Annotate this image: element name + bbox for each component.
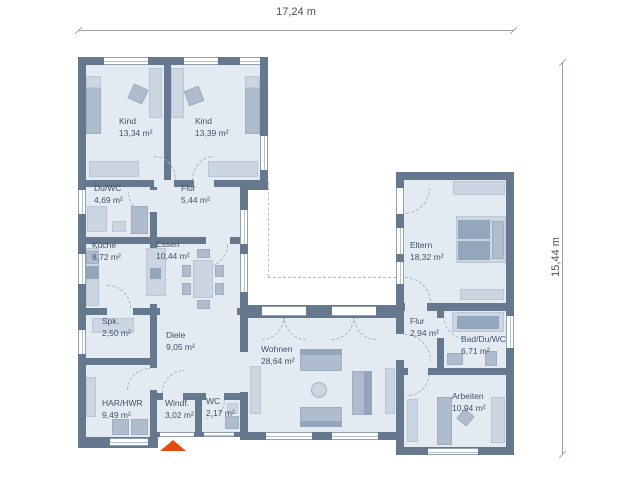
chair-icon [182, 265, 191, 277]
window [332, 432, 378, 440]
window [396, 228, 404, 254]
door-opening [396, 334, 404, 360]
room-label-windf: Windf.3,02 m² [165, 398, 194, 422]
mattress-icon [458, 220, 490, 239]
passage-essen-diele [160, 308, 237, 315]
window [428, 448, 478, 455]
terrace-door-threshold [396, 188, 404, 214]
chair-icon [215, 283, 224, 295]
window [110, 438, 148, 446]
window [240, 57, 260, 65]
pillow-icon [86, 76, 101, 88]
wardrobe-icon [453, 181, 505, 195]
sofa-back-icon [300, 349, 342, 355]
bathtub-inner-icon [457, 316, 499, 329]
room-label-essen: Essen10,44 m² [156, 239, 190, 263]
room-label-wc: WC2,17 m² [206, 396, 235, 420]
chair-icon [197, 249, 210, 258]
window [78, 254, 86, 284]
room-label-harhwr: HAR/HWR9,49 m² [102, 398, 143, 422]
pillow-icon [492, 221, 504, 259]
room-label-arbeiten: Arbeiten10,94 m² [452, 391, 486, 415]
room-label-duwc: Du/WC4,69 m² [94, 183, 123, 207]
room-label-eltern: Eltern18,32 m² [410, 240, 444, 264]
door-opening [405, 303, 427, 311]
chair-icon [197, 300, 210, 309]
wardrobe-icon [149, 68, 162, 118]
shelf-icon [385, 368, 395, 414]
pillow-icon [245, 76, 260, 88]
wardrobe-icon [171, 68, 184, 118]
room-label-kind2: Kind13,39 m² [195, 116, 229, 140]
window [78, 190, 86, 214]
room-label-flur1: Flur5,44 m² [181, 183, 210, 207]
window [240, 210, 248, 244]
shower-icon [87, 206, 107, 232]
window [240, 254, 248, 292]
room-label-kueche: Küche8,72 m² [92, 240, 121, 264]
door-opening [408, 368, 428, 375]
top-dimension-line [78, 30, 514, 31]
mattress-icon [458, 241, 490, 260]
bench-icon [460, 289, 504, 300]
window [78, 330, 86, 354]
cooktop-icon [150, 268, 161, 279]
right-dimension-line [562, 62, 563, 455]
door-opening [150, 190, 157, 212]
room-label-flur2: Flur2,94 m² [410, 316, 439, 340]
top-dimension-label: 17,24 m [78, 6, 514, 18]
terrace-dashed-line [268, 277, 396, 278]
window [204, 432, 234, 437]
window [184, 57, 218, 65]
sofa-back-icon [364, 371, 372, 415]
desk-icon [437, 397, 452, 445]
room-label-bad: Bad/Du/WC6,71 m² [461, 334, 506, 358]
chair-icon [182, 283, 191, 295]
sofa-back-icon [300, 421, 342, 427]
window [506, 316, 514, 348]
door-opening [154, 180, 174, 187]
coffee-table-icon [311, 382, 327, 398]
door-opening [150, 368, 157, 390]
window [260, 136, 268, 170]
floor-plan: 17,24 m 15,44 m [0, 0, 640, 480]
appliance-icon [86, 266, 99, 279]
entrance-arrow-icon [160, 440, 186, 451]
dimension-tick [510, 27, 517, 34]
vanity-icon [131, 206, 148, 234]
sideboard-icon [250, 366, 261, 414]
window [396, 262, 404, 284]
door-opening [107, 308, 133, 315]
french-door-threshold [332, 306, 376, 316]
sink-icon [112, 221, 126, 232]
right-dimension-label: 15,44 m [550, 225, 562, 289]
room-label-diele: Diele9,05 m² [166, 330, 195, 354]
cabinet-icon [407, 399, 418, 442]
room-label-wohnen: Wohnen28,64 m² [261, 344, 295, 368]
dining-table-icon [193, 260, 213, 298]
french-door-threshold [262, 306, 306, 316]
entrance-door-threshold [160, 432, 194, 437]
chair-icon [215, 265, 224, 277]
window [104, 57, 148, 65]
wardrobe-icon [89, 161, 139, 177]
terrace-dashed-line [268, 182, 269, 277]
window [266, 432, 312, 440]
cabinet-icon [491, 397, 505, 443]
room-label-spk: Spk.2,50 m² [102, 316, 131, 340]
door-opening [206, 237, 230, 244]
wardrobe-icon [208, 161, 258, 177]
room-label-kind1: Kind13,34 m² [119, 116, 153, 140]
dimension-tick [559, 451, 566, 458]
shelf-icon [86, 377, 96, 417]
passage-diele-wohnen [240, 352, 248, 392]
